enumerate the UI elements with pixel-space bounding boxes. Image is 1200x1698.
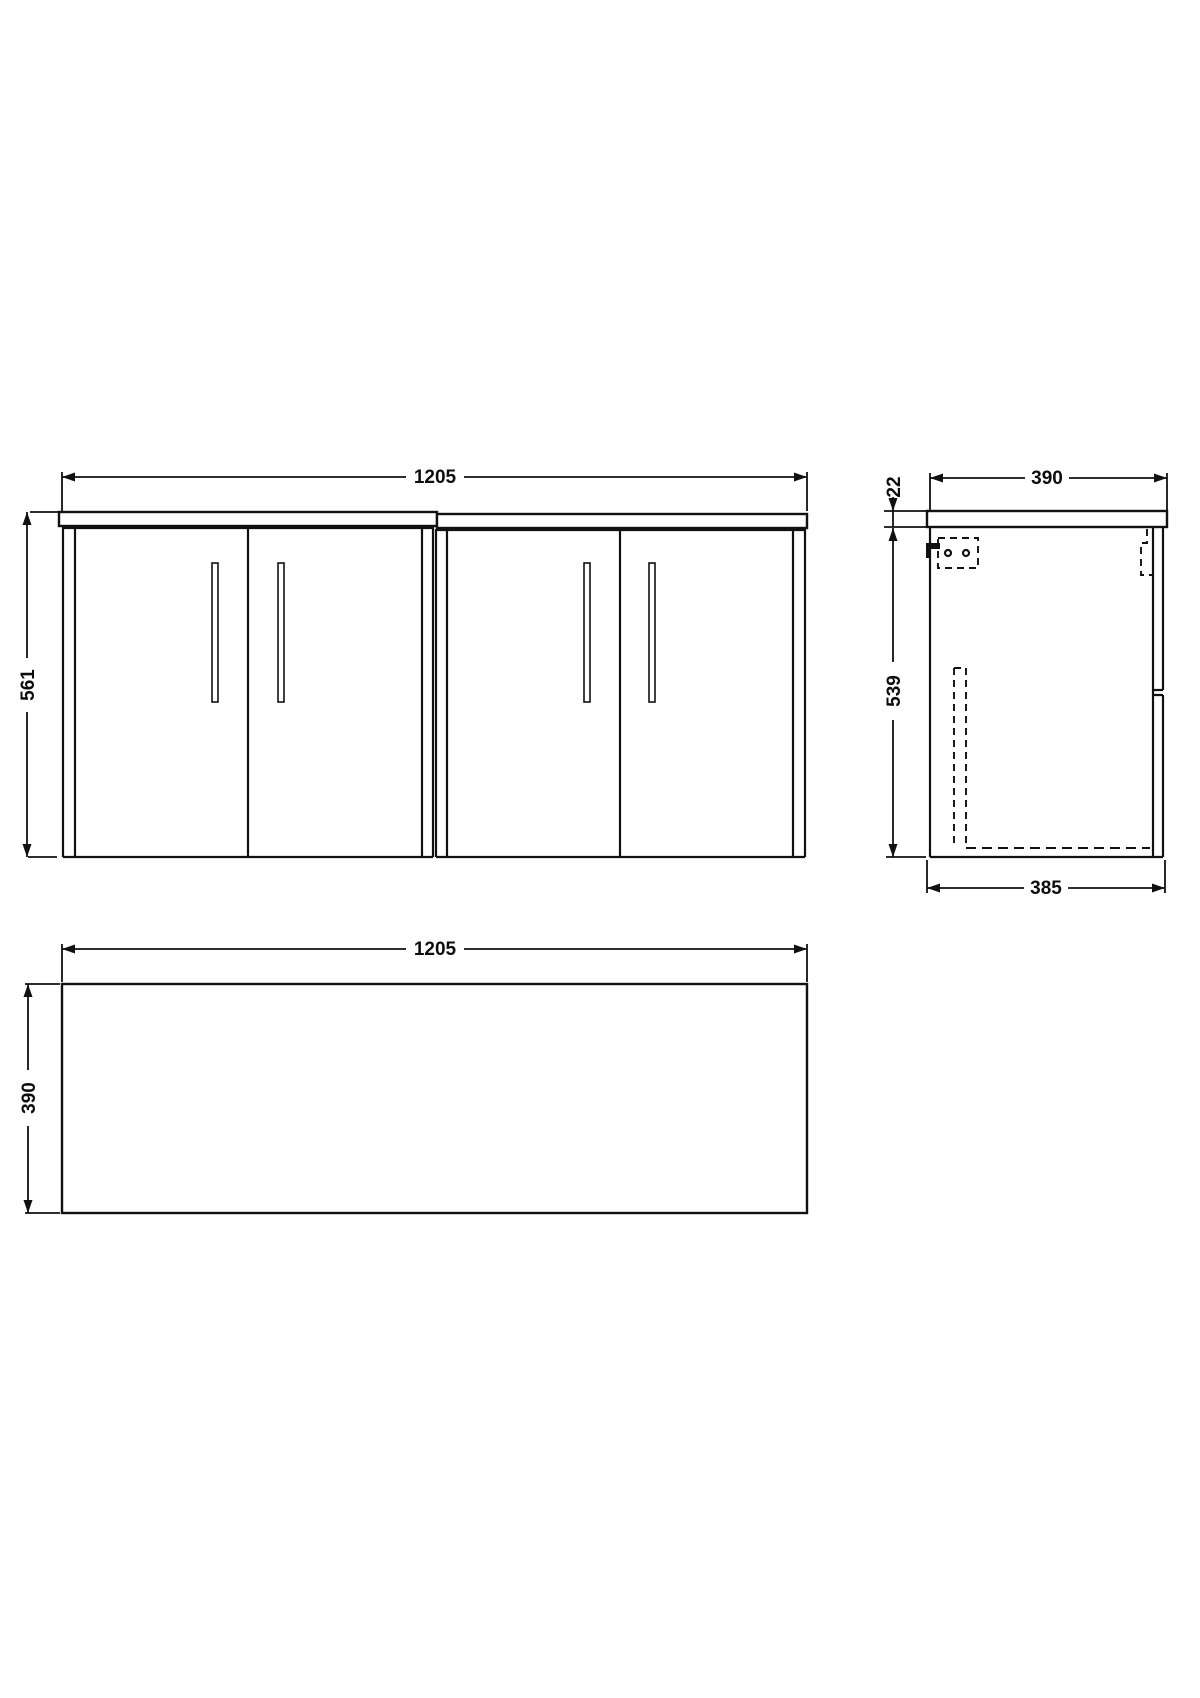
- technical-drawing-page: 1205 561: [0, 0, 1200, 1698]
- front-width-label: 1205: [414, 467, 457, 488]
- side-hinge-dashed: [1141, 529, 1152, 575]
- front-door-handle: [649, 563, 655, 702]
- vanity-unit-dimension-drawing: 1205 561: [0, 0, 1200, 1698]
- side-section-view: 390 22 539 385: [884, 468, 1167, 899]
- front-width-dimension: 1205: [62, 467, 807, 511]
- front-door-handle: [278, 563, 284, 702]
- side-depth-label: 390: [1031, 468, 1063, 489]
- side-carcass-outline: [930, 527, 1163, 857]
- plan-worktop-outline: [62, 984, 807, 1213]
- side-height-label: 539: [884, 675, 905, 707]
- bracket-fixing-hole: [945, 550, 951, 556]
- front-right-worktop: [437, 514, 807, 528]
- front-door-handle: [212, 563, 218, 702]
- front-right-cabinet-outline: [436, 529, 805, 857]
- bracket-fixing-hole: [963, 550, 969, 556]
- front-height-dimension: 561: [18, 512, 58, 857]
- side-bottom-depth-label: 385: [1030, 878, 1062, 899]
- front-left-worktop: [59, 512, 437, 526]
- front-door-handle: [584, 563, 590, 702]
- front-height-label: 561: [18, 669, 39, 701]
- side-wall-bracket: [926, 538, 978, 568]
- plan-depth-dimension: 390: [19, 984, 60, 1213]
- side-height-dimension: 539: [884, 528, 926, 857]
- front-elevation-view: 1205 561: [18, 467, 807, 857]
- plan-width-label: 1205: [414, 939, 457, 960]
- side-depth-dimension: 390: [930, 468, 1167, 510]
- side-worktop-thickness-dimension: 22: [884, 476, 926, 527]
- side-service-void-dashed: [954, 668, 966, 848]
- plan-depth-label: 390: [19, 1082, 40, 1114]
- side-door-edge: [1153, 528, 1163, 857]
- side-worktop: [927, 511, 1167, 527]
- plan-width-dimension: 1205: [62, 939, 807, 982]
- side-worktop-thickness-label: 22: [884, 476, 905, 497]
- side-bottom-depth-dimension: 385: [927, 860, 1165, 899]
- plan-view: 1205 390: [19, 939, 807, 1213]
- front-left-cabinet-outline: [63, 527, 433, 857]
